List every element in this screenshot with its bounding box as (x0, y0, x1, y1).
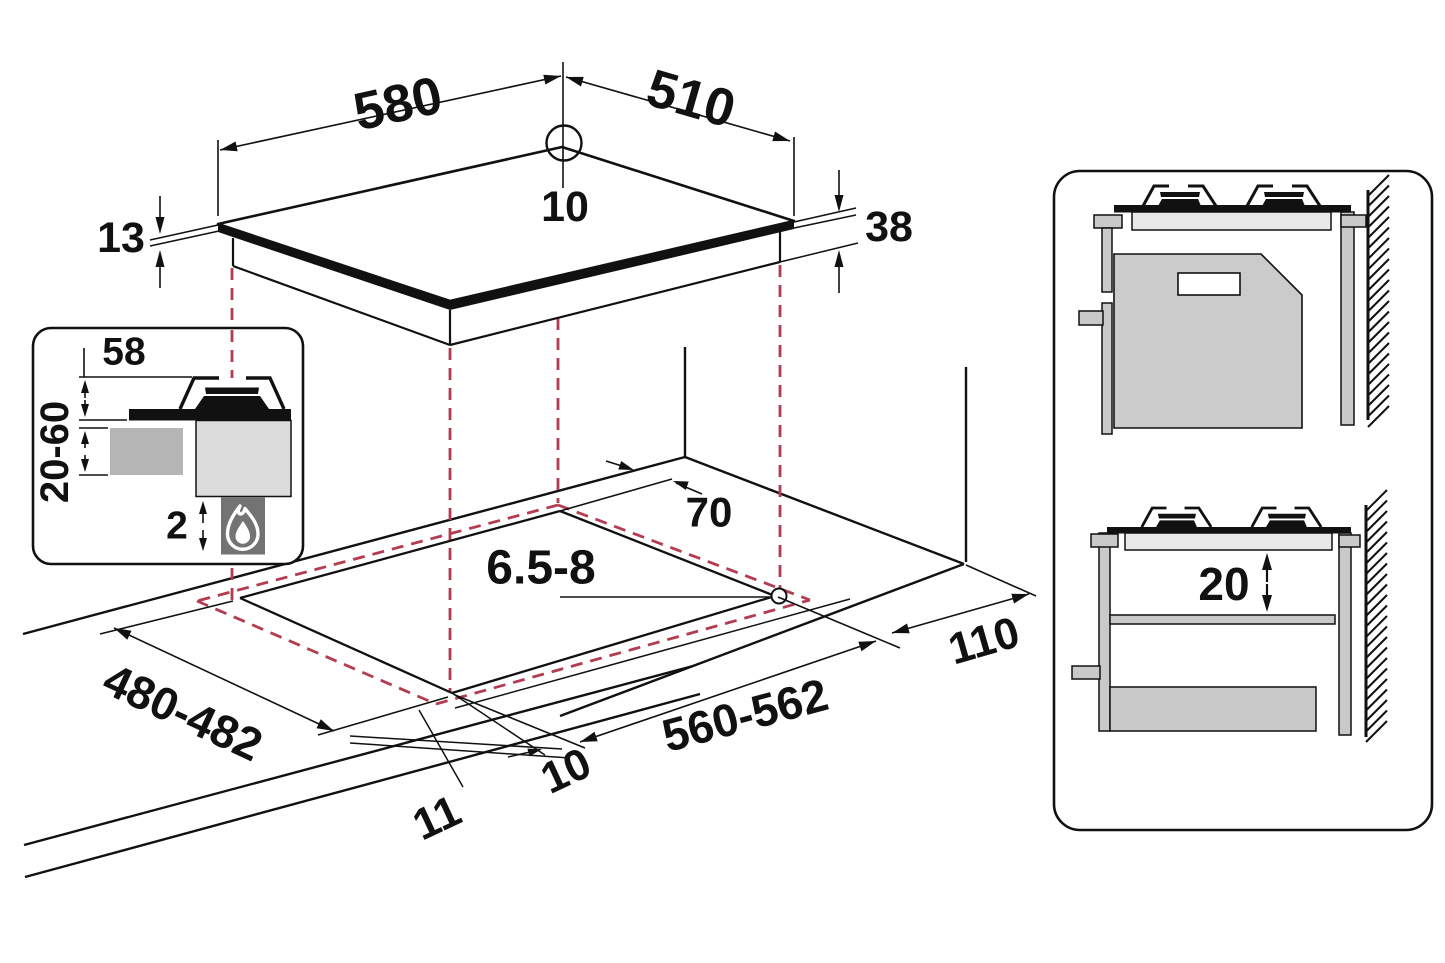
svg-text:38: 38 (865, 203, 913, 251)
svg-text:10: 10 (541, 183, 589, 231)
svg-text:20-60: 20-60 (33, 401, 77, 503)
svg-text:2: 2 (166, 505, 188, 548)
svg-text:13: 13 (97, 214, 145, 262)
svg-text:6.5-8: 6.5-8 (486, 542, 595, 595)
svg-text:58: 58 (102, 331, 145, 374)
svg-text:70: 70 (686, 489, 733, 536)
svg-text:20: 20 (1198, 558, 1249, 610)
